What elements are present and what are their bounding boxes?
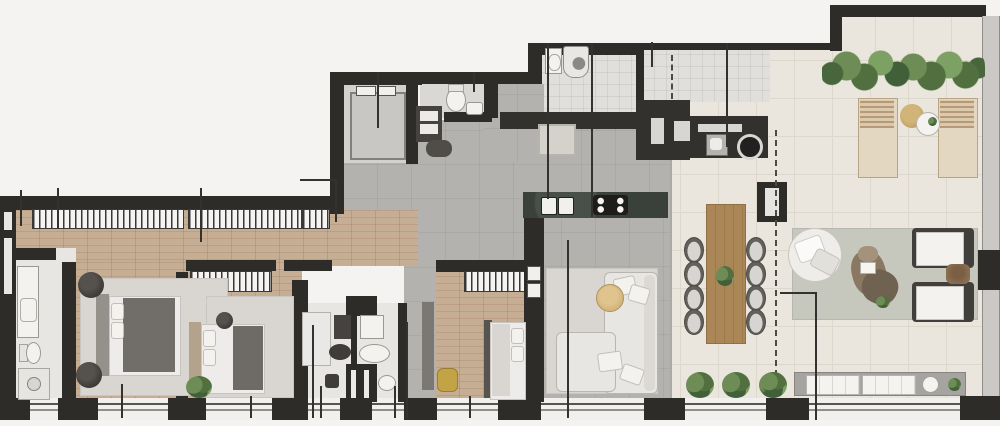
terrace-hedge-planter: [822, 46, 985, 96]
left-wall-window: [4, 238, 12, 294]
terrace-floor-plant: [762, 372, 786, 396]
bedroom2-pouf: [216, 312, 233, 329]
driftwood-coffee-table: [858, 246, 878, 262]
corridor-wardrobe: [32, 209, 184, 229]
leader-line: [320, 386, 322, 418]
leader-line: [567, 240, 569, 418]
tv-speaker: [527, 266, 541, 281]
window-pillar: [404, 398, 437, 420]
master-bed-duvet: [123, 298, 175, 372]
dining-chair: [746, 309, 766, 335]
leader-line: [200, 188, 202, 242]
sun-lounger-backrest: [860, 100, 894, 128]
island-sink: [541, 197, 557, 215]
terrace-top-wall: [838, 5, 986, 17]
island-cooktop: [593, 195, 628, 215]
right-wall-segment: [978, 250, 1000, 290]
leader-line: [121, 384, 123, 418]
leader-line: [57, 188, 59, 229]
entry-shelf: [420, 111, 438, 121]
corridor-top-wall: [0, 196, 332, 210]
dining-centerpiece-plant: [716, 266, 734, 286]
bathroomA-vanity: [334, 315, 351, 339]
hall-cabinet: [422, 302, 434, 390]
bathroomA-tub: [329, 344, 351, 360]
floor-transition-line: [670, 160, 672, 402]
wc-top-wall: [420, 72, 542, 84]
service-door-dashed: [671, 55, 673, 99]
counter-inset: [698, 124, 742, 132]
master-shower-head: [27, 377, 41, 391]
leader-line: [726, 43, 728, 147]
left-wall-window: [4, 212, 12, 230]
elevator-left-wall: [330, 72, 344, 214]
master-pouf: [78, 272, 104, 298]
window-pillar: [766, 398, 809, 420]
master-bed-pillow: [111, 303, 124, 320]
window-pillar: [960, 396, 1000, 420]
master-vanity-sink: [20, 298, 37, 322]
wc-toilet-tank: [448, 84, 464, 92]
bathroom-door-leaf: [364, 370, 369, 398]
sofa-pillow: [597, 350, 623, 372]
elevator-door: [356, 86, 376, 96]
bathroomB-tub: [359, 344, 390, 363]
laundry-divider-wall: [636, 50, 644, 102]
service-room-floor: [643, 50, 770, 102]
leader-line: [780, 292, 816, 294]
corridor-wardrobe: [188, 209, 302, 229]
corridor-wardrobe: [302, 209, 330, 229]
elevator-door: [378, 86, 396, 96]
bathrooms-center-wall-top: [346, 296, 377, 316]
bench-cushion: [862, 375, 916, 395]
bathrooms-center-wall-thin: [351, 316, 357, 364]
master-toilet: [26, 342, 41, 364]
master-bath-top-wall: [16, 248, 56, 260]
dining-chair: [746, 285, 766, 311]
master-bed-pillow: [111, 322, 124, 339]
terrace-boundary-dashed: [775, 130, 777, 396]
leader-line: [20, 190, 22, 226]
leader-line: [469, 396, 471, 418]
bathroomA-toilet: [325, 374, 339, 388]
living-side-table: [596, 284, 624, 312]
leader-line: [394, 386, 396, 418]
island-sink: [558, 197, 574, 215]
bench-plant: [948, 378, 961, 391]
bedroom3-yellow-pouf: [437, 368, 458, 392]
armchair-seat: [916, 286, 964, 320]
bedroom2-duvet: [233, 326, 263, 390]
leader-line: [406, 322, 408, 418]
armchair-seat: [916, 232, 964, 266]
master-pouf: [76, 362, 102, 388]
leader-line: [335, 179, 337, 222]
bath-vestibule-wall: [284, 260, 332, 271]
bathroomA-shower: [302, 312, 331, 366]
bedroom3-wardrobe: [464, 271, 528, 292]
leader-line: [377, 72, 379, 128]
bedroom2-pillow: [203, 330, 216, 347]
bedroom2-plant: [186, 376, 212, 398]
leader-line: [312, 325, 314, 418]
leader-line: [300, 179, 337, 181]
wc-sink: [466, 102, 483, 115]
bedroom3-pillow: [511, 346, 524, 362]
dining-chair: [746, 261, 766, 287]
dining-chair: [684, 261, 704, 287]
leader-line: [815, 292, 817, 420]
master-bed-headboard: [96, 294, 109, 376]
dining-chair: [684, 309, 704, 335]
planter-shrub: [686, 372, 714, 398]
bedroom2-top-wall: [186, 260, 276, 271]
leader-line: [651, 42, 653, 67]
dining-chair: [684, 237, 704, 263]
bbq-sink-basin: [710, 138, 722, 150]
coffee-table-book: [860, 262, 876, 274]
tv-speaker: [527, 283, 541, 298]
bench-tray: [922, 376, 939, 393]
counter-inset: [651, 118, 664, 144]
leader-line: [547, 43, 549, 199]
bathroomB-vanity: [360, 315, 384, 339]
bbq-round-grill: [737, 134, 763, 160]
entry-mat: [426, 140, 452, 157]
bedroom3-pillow: [511, 328, 524, 344]
armchair-side-table: [946, 264, 970, 284]
planter-shrub: [722, 372, 750, 398]
apartment-floor-plan: [0, 0, 1000, 426]
master-bath-divider-wall: [62, 262, 76, 402]
leader-line: [250, 396, 252, 418]
entry-shelf: [420, 124, 438, 134]
dining-chair: [746, 237, 766, 263]
sun-lounger-backrest: [940, 100, 974, 128]
bedroom2-pillow: [203, 349, 216, 366]
bedroom3-duvet: [492, 324, 510, 396]
dining-chair: [684, 285, 704, 311]
north-exterior-wall: [644, 43, 834, 50]
leader-line: [591, 43, 593, 217]
counter-inset: [674, 121, 690, 141]
coffee-table-plant: [876, 296, 890, 308]
bathroom-door-leaf: [351, 370, 356, 398]
tray-leaf: [928, 117, 937, 126]
tv-wall: [524, 218, 544, 402]
kitchen-entry-rug: [538, 124, 576, 156]
washing-machine: [563, 46, 589, 78]
window-pillar: [644, 398, 685, 420]
laundry-sink-basin: [548, 54, 561, 71]
leader-line: [473, 72, 475, 92]
